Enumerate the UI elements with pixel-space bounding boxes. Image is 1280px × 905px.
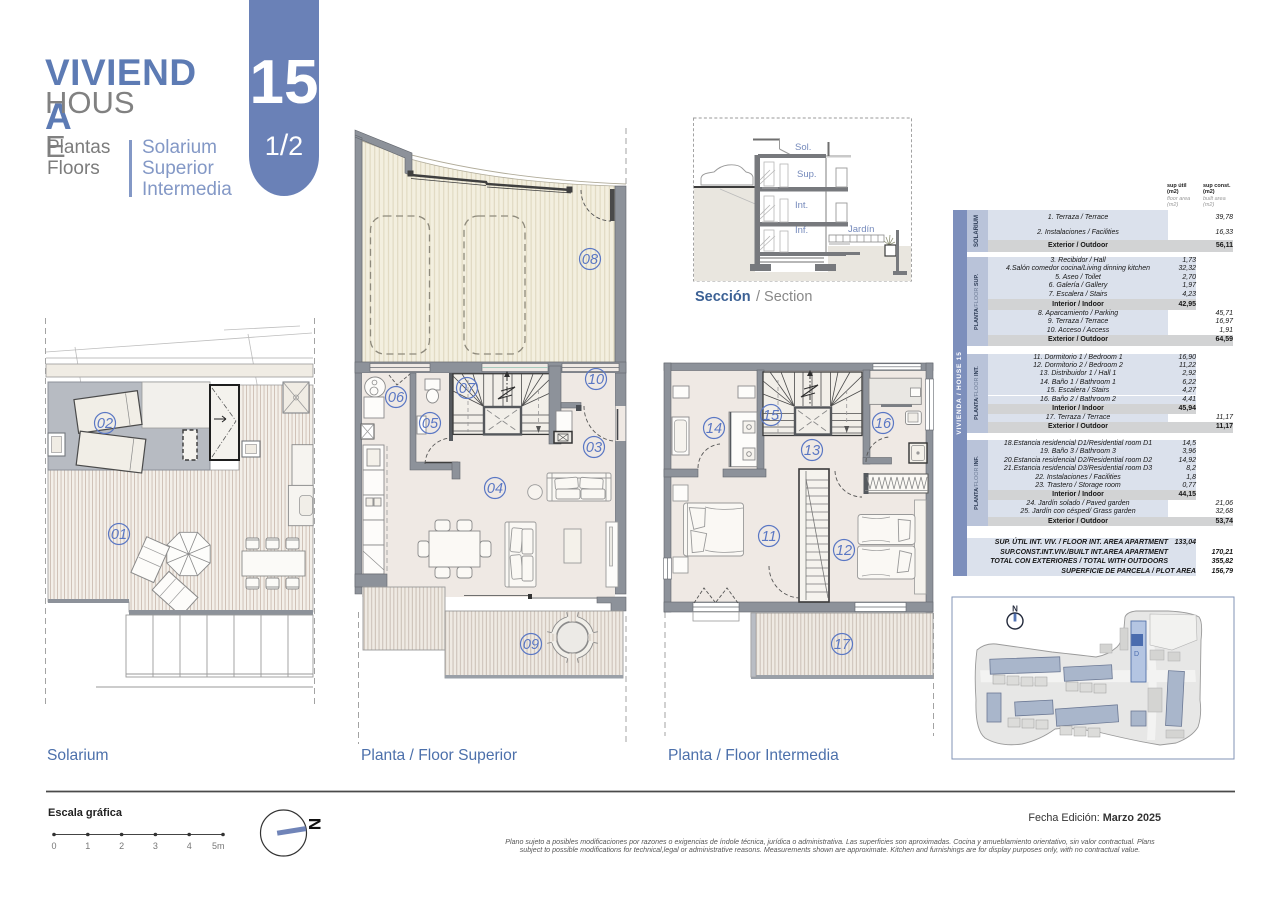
svg-text:3: 3 xyxy=(153,841,158,851)
svg-text:10: 10 xyxy=(588,372,604,388)
svg-text:Planta / Floor Superior: Planta / Floor Superior xyxy=(361,747,517,764)
svg-text:12: 12 xyxy=(836,543,852,559)
svg-text:01: 01 xyxy=(111,527,127,543)
svg-text:17: 17 xyxy=(834,637,851,653)
svg-text:14: 14 xyxy=(706,421,722,437)
svg-text:Sup.: Sup. xyxy=(797,169,817,180)
svg-text:Solarium: Solarium xyxy=(47,747,109,764)
svg-text:N: N xyxy=(305,818,324,830)
svg-text:Planta / Floor Intermedia: Planta / Floor Intermedia xyxy=(668,747,839,764)
svg-text:15: 15 xyxy=(763,408,780,424)
svg-text:4: 4 xyxy=(187,841,192,851)
svg-text:04: 04 xyxy=(487,481,503,497)
svg-text:07: 07 xyxy=(459,381,476,397)
svg-text:16: 16 xyxy=(875,416,892,432)
svg-text:1: 1 xyxy=(85,841,90,851)
svg-text:08: 08 xyxy=(582,252,598,268)
svg-text:13: 13 xyxy=(804,443,820,459)
svg-text:Inf.: Inf. xyxy=(795,225,808,236)
svg-text:/ Section: / Section xyxy=(756,289,812,305)
svg-text:Sección: Sección xyxy=(695,289,751,305)
svg-text:06: 06 xyxy=(388,390,405,406)
svg-text:02: 02 xyxy=(97,416,113,432)
svg-text:Int.: Int. xyxy=(795,200,808,211)
svg-text:11: 11 xyxy=(761,529,776,545)
svg-text:2: 2 xyxy=(119,841,124,851)
svg-text:03: 03 xyxy=(586,440,602,456)
svg-text:Jardín: Jardín xyxy=(848,224,874,235)
svg-text:N: N xyxy=(1012,605,1018,614)
svg-text:0: 0 xyxy=(51,841,56,851)
svg-text:5m: 5m xyxy=(212,841,225,851)
svg-text:09: 09 xyxy=(523,637,539,653)
svg-text:D: D xyxy=(1134,651,1139,658)
svg-text:Sol.: Sol. xyxy=(795,142,811,153)
svg-text:05: 05 xyxy=(422,416,439,432)
